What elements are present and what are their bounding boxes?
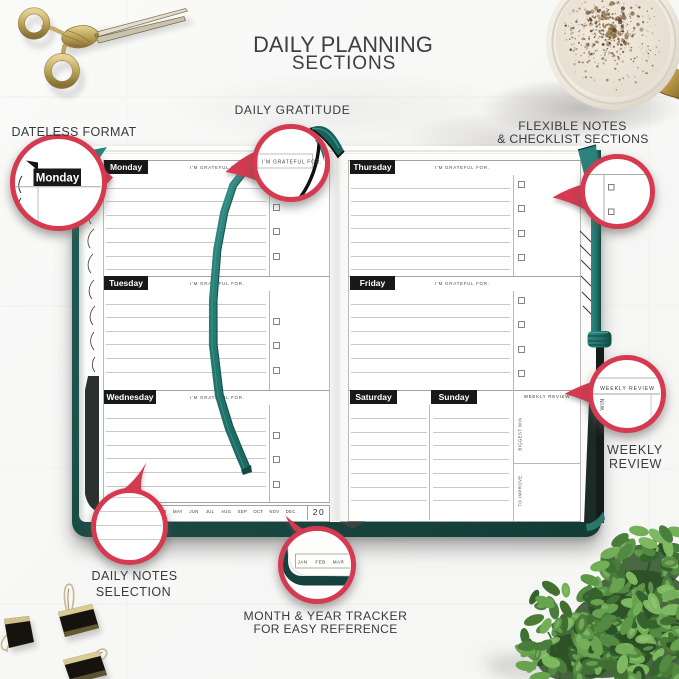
- svg-text:I’M GRATEFUL FOR.: I’M GRATEFUL FOR.: [262, 160, 322, 166]
- svg-text:Monday: Monday: [35, 172, 79, 184]
- svg-text:MAR: MAR: [333, 559, 345, 564]
- svg-text:FEB: FEB: [315, 559, 325, 564]
- svg-text:WIN: WIN: [600, 398, 606, 410]
- svg-text:WEEKLY REVIEW: WEEKLY REVIEW: [600, 386, 655, 392]
- svg-text:JAN: JAN: [298, 559, 308, 564]
